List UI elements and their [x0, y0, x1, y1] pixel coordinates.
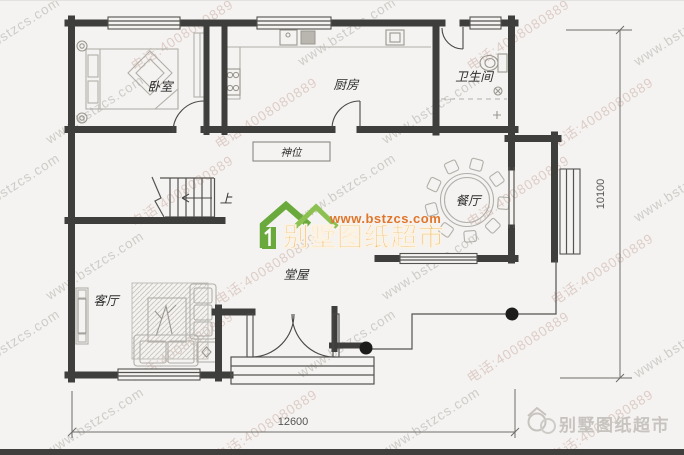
- center-logo-brand: 别墅图纸超市: [282, 222, 445, 253]
- dimension-width-label: 12600: [278, 416, 309, 428]
- floor-plan-page: 电话:4008080889www.bstzcs.com电话:4008080889…: [0, 0, 684, 455]
- room-label-living: 客厅: [93, 293, 121, 308]
- column-icon: [506, 308, 519, 321]
- column-icon: [360, 342, 373, 355]
- floor-plan-drawing: 神位 卧室 厨房 卫生间 餐厅 堂屋 客厅 上 12600 10100: [0, 1, 684, 455]
- corner-logo: 别墅图纸超市: [528, 408, 670, 436]
- shrine-box: 神位: [253, 142, 330, 161]
- porch-outline: [231, 260, 556, 384]
- dimension-bottom: 12600: [68, 389, 519, 438]
- floor-drain-icon: [494, 87, 502, 95]
- bottom-border-bar: [0, 449, 684, 455]
- kitchen-counter-icon: [225, 30, 431, 99]
- shower-area: [441, 99, 507, 119]
- stairs-up-label: 上: [220, 191, 233, 206]
- stairs-icon: [152, 177, 215, 217]
- room-label-dining: 餐厅: [455, 193, 483, 208]
- center-logo: www.bstzcs.com 别墅图纸超市: [262, 205, 445, 253]
- dimension-height-label: 10100: [595, 179, 607, 210]
- room-label-hall: 堂屋: [283, 267, 310, 282]
- corner-logo-brand: 别墅图纸超市: [558, 415, 670, 436]
- corner-logo-icon: [528, 408, 546, 416]
- shrine-label: 神位: [281, 147, 303, 159]
- room-label-bedroom: 卧室: [147, 79, 174, 94]
- room-label-bathroom: 卫生间: [455, 69, 494, 84]
- room-label-kitchen: 厨房: [333, 77, 360, 92]
